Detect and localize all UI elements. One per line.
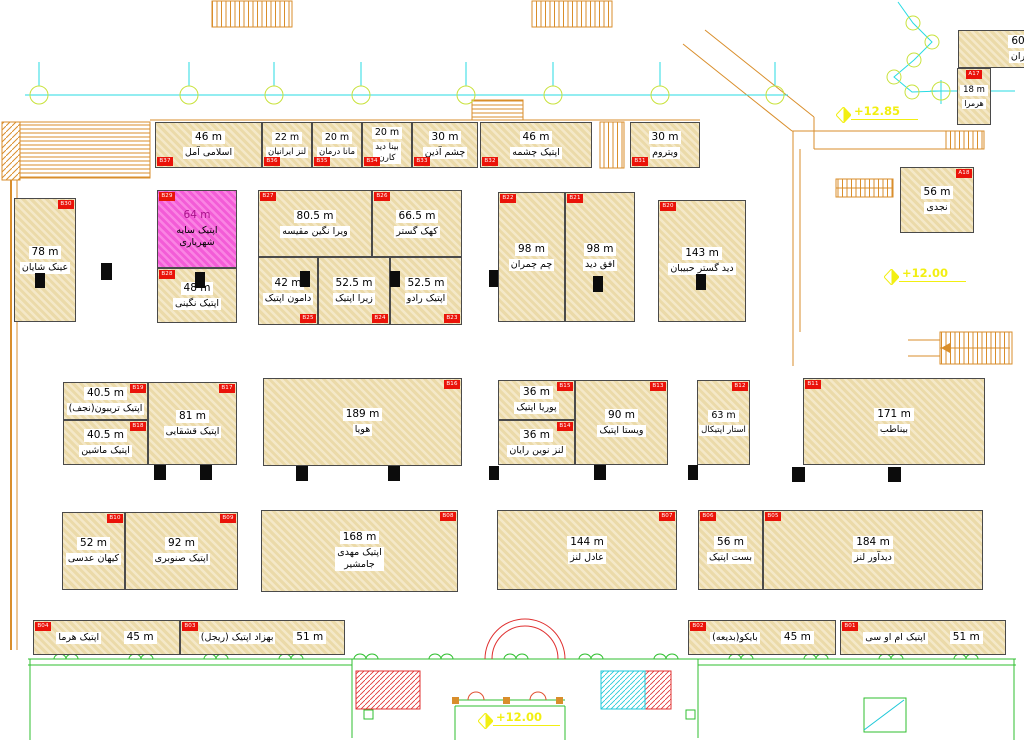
unit-tag: B04 <box>35 622 51 631</box>
unit-tag: B17 <box>219 384 235 393</box>
unit-B32[interactable]: B3246 mاپتیک چشمه <box>480 122 592 168</box>
unit-A17[interactable]: A1718 mهرمرا <box>957 68 991 125</box>
unit-name-label: اپتیک مهدی جامشیر <box>335 547 383 571</box>
unit-labels: 56 mبست اپتیک <box>699 511 762 589</box>
unit-name-label: کیهان عدسی <box>66 553 121 565</box>
door-marker <box>296 466 308 481</box>
unit-labels: 81 mاپتیک قشقایی <box>149 383 236 464</box>
unit-B21[interactable]: B2198 mافق دید <box>565 192 635 322</box>
unit-B27[interactable]: B2780.5 mویرا نگین مقیسه <box>258 190 372 257</box>
unit-corner[interactable]: 60ران <box>958 30 1024 68</box>
door-marker <box>35 273 45 288</box>
door-marker <box>195 272 205 288</box>
unit-name-label: چم چمران <box>509 259 554 271</box>
door-marker <box>489 466 499 480</box>
unit-name-label: هرمرا <box>962 99 986 109</box>
unit-tag: B34 <box>364 157 380 166</box>
unit-labels: 64 mاپتیک سایه شهریاری <box>158 191 236 267</box>
unit-tag: B35 <box>314 157 330 166</box>
unit-tag: B08 <box>440 512 456 521</box>
unit-area-label: 81 m <box>176 410 209 423</box>
unit-tag: B32 <box>482 157 498 166</box>
unit-name-label: زیرا اپتیک <box>333 293 375 305</box>
unit-B23[interactable]: B2352.5 mاپتیک رادو <box>390 257 462 325</box>
unit-tag: B28 <box>159 270 175 279</box>
door-marker <box>792 467 805 482</box>
elevation-marker: +12.00 <box>884 266 966 285</box>
unit-area-label: 52.5 m <box>333 277 376 290</box>
unit-area-label: 18 m <box>960 85 988 96</box>
elevation-label: +12.00 <box>493 710 560 726</box>
unit-labels: 63 mاستار اپتیکال <box>698 381 749 464</box>
unit-tag: B11 <box>805 380 821 389</box>
unit-tag: B14 <box>557 422 573 431</box>
unit-labels: 52 mکیهان عدسی <box>63 513 124 589</box>
unit-area-label: 144 m <box>567 536 607 549</box>
door-marker <box>390 271 400 287</box>
unit-B20[interactable]: B20143 mدید گستر حبیبان <box>658 200 746 322</box>
level-symbol-icon <box>478 713 493 729</box>
unit-area-label: 168 m <box>340 531 380 544</box>
unit-tag: A17 <box>966 70 982 79</box>
unit-tag: B09 <box>220 514 236 523</box>
unit-area-label: 20 m <box>322 132 352 144</box>
room-diagonal <box>864 700 904 730</box>
unit-tag: A18 <box>956 169 972 178</box>
unit-tag: B07 <box>659 512 675 521</box>
floor-plan: B3746 mاسلامی آملB3622 mلنز ایرانیانB352… <box>0 0 1024 740</box>
unit-tag: B02 <box>690 622 706 631</box>
unit-labels: 98 mچم چمران <box>499 193 564 321</box>
unit-B33[interactable]: B3330 mچشم آذین <box>412 122 478 168</box>
unit-B12[interactable]: B1263 mاستار اپتیکال <box>697 380 750 465</box>
unit-name-label: دیدآور لنز <box>852 552 894 564</box>
unit-area-label: 36 m <box>520 429 553 442</box>
unit-tag: B05 <box>765 512 781 521</box>
unit-name-label: ران <box>1009 51 1024 63</box>
unit-area-label: 171 m <box>874 408 914 421</box>
unit-tag: B13 <box>650 382 666 391</box>
unit-B22[interactable]: B2298 mچم چمران <box>498 192 565 322</box>
unit-labels: 184 mدیدآور لنز <box>764 511 982 589</box>
unit-tag: B37 <box>157 157 173 166</box>
unit-A18[interactable]: A1856 mنجدی <box>900 167 974 233</box>
unit-labels: بهزاد اپتیک (ریجل)51 m <box>181 621 344 654</box>
unit-tag: B22 <box>500 194 516 203</box>
unit-B02[interactable]: B02بایکو(بدیعه)45 m <box>688 620 836 655</box>
unit-tag: B25 <box>300 314 316 323</box>
column-grid-lines <box>25 2 1015 104</box>
elevation-label: +12.00 <box>899 266 966 282</box>
unit-B08[interactable]: B08168 mاپتیک مهدی جامشیر <box>261 510 458 592</box>
unit-B05[interactable]: B05184 mدیدآور لنز <box>763 510 983 590</box>
unit-area-label: 46 m <box>520 131 553 144</box>
unit-name-label: اپتیک صنوبری <box>153 553 211 565</box>
unit-tag: B15 <box>557 382 573 391</box>
door-marker <box>593 276 603 292</box>
unit-tag: B03 <box>182 622 198 631</box>
door-marker <box>154 465 166 480</box>
unit-B10[interactable]: B1052 mکیهان عدسی <box>62 512 125 590</box>
unit-name-label: بهزاد اپتیک (ریجل) <box>199 632 276 644</box>
elevation-marker: +12.00 <box>478 710 560 729</box>
unit-tag: B23 <box>444 314 460 323</box>
unit-name-label: هویا <box>353 424 372 436</box>
unit-labels: اپتیک هرما45 m <box>34 621 179 654</box>
unit-B19[interactable]: B1940.5 mاپتیک تریبون(نجف) <box>63 382 148 420</box>
unit-area-label: 66.5 m <box>396 210 439 223</box>
unit-area-label: 30 m <box>429 131 462 144</box>
unit-B34[interactable]: B3420 mبینا دید کارن <box>362 122 412 168</box>
unit-labels: اپتیک ام او سی51 m <box>841 621 1005 654</box>
unit-name-label: ویستا اپتیک <box>597 425 645 437</box>
unit-B37[interactable]: B3746 mاسلامی آمل <box>155 122 262 168</box>
unit-name-label: عادل لنز <box>568 552 606 564</box>
unit-B07[interactable]: B07144 mعادل لنز <box>497 510 677 590</box>
unit-area-label: 46 m <box>192 131 225 144</box>
unit-labels: 60ران <box>959 31 1024 67</box>
unit-area-label: 56 m <box>921 186 954 199</box>
unit-B04[interactable]: B04اپتیک هرما45 m <box>33 620 180 655</box>
unit-name-label: بایکو(بدیعه) <box>710 632 760 644</box>
unit-labels: 144 mعادل لنز <box>498 511 676 589</box>
unit-name-label: پوریا اپتیک <box>514 402 558 414</box>
unit-tag: B06 <box>700 512 716 521</box>
unit-B16[interactable]: B16189 mهویا <box>263 378 462 466</box>
unit-area-label: 80.5 m <box>294 210 337 223</box>
unit-labels: 143 mدید گستر حبیبان <box>659 201 745 321</box>
unit-tag: B36 <box>264 157 280 166</box>
unit-area-label: 56 m <box>714 536 747 549</box>
unit-tag: B29 <box>159 192 175 201</box>
unit-area-label: 45 m <box>781 631 814 644</box>
door-marker <box>489 270 498 287</box>
unit-labels: 168 mاپتیک مهدی جامشیر <box>262 511 457 591</box>
unit-name-label: دامون اپتیک <box>263 293 313 305</box>
unit-name-label: بست اپتیک <box>707 552 754 564</box>
unit-area-label: 98 m <box>515 243 548 256</box>
unit-name-label: اپتیک تریبون(نجف) <box>67 403 145 415</box>
unit-tag: B21 <box>567 194 583 203</box>
unit-name-label: لنز نوین رایان <box>507 445 565 457</box>
unit-tag: B12 <box>732 382 748 391</box>
unit-tag: B19 <box>130 384 146 393</box>
unit-B31[interactable]: B3130 mویتروم <box>630 122 700 168</box>
door-marker <box>101 263 112 280</box>
door-marker <box>388 466 400 481</box>
unit-name-label: اپتیک سایه شهریاری <box>158 225 236 249</box>
unit-name-label: استار اپتیکال <box>699 425 748 436</box>
unit-B36[interactable]: B3622 mلنز ایرانیان <box>262 122 312 168</box>
unit-B29[interactable]: B2964 mاپتیک سایه شهریاری <box>157 190 237 268</box>
unit-name-label: اسلامی آمل <box>183 147 234 159</box>
door-marker <box>888 467 901 482</box>
unit-area-label: 63 m <box>708 410 738 422</box>
unit-tag: B16 <box>444 380 460 389</box>
unit-name-label: اپتیک نگینی <box>173 298 221 310</box>
unit-B18[interactable]: B1840.5 mاپتیک ماشین <box>63 420 148 465</box>
elevator-shaft <box>601 671 645 709</box>
unit-B14[interactable]: B1436 mلنز نوین رایان <box>498 420 575 465</box>
unit-area-label: 189 m <box>343 408 383 421</box>
unit-B01[interactable]: B01اپتیک ام او سی51 m <box>840 620 1006 655</box>
unit-area-label: 51 m <box>293 631 326 644</box>
unit-area-label: 78 m <box>29 246 62 259</box>
unit-name-label: اپتیک ماشین <box>79 445 132 457</box>
unit-area-label: 36 m <box>520 386 553 399</box>
unit-tag: B20 <box>660 202 676 211</box>
unit-B35[interactable]: B3520 mمانا درمان <box>312 122 362 168</box>
unit-tag: B10 <box>107 514 123 523</box>
unit-B30[interactable]: B3078 mعینک شایان <box>14 198 76 322</box>
unit-tag: B30 <box>58 200 74 209</box>
unit-area-label: 52.5 m <box>405 277 448 290</box>
unit-labels: 98 mافق دید <box>566 193 634 321</box>
unit-labels: 78 mعینک شایان <box>15 199 75 321</box>
unit-name-label: اپتیک چشمه <box>510 147 561 159</box>
unit-tag: B31 <box>632 157 648 166</box>
unit-labels: 92 mاپتیک صنوبری <box>126 513 237 589</box>
unit-tag: B33 <box>414 157 430 166</box>
unit-B17[interactable]: B1781 mاپتیک قشقایی <box>148 382 237 465</box>
unit-area-label: 45 m <box>124 631 157 644</box>
unit-name-label: بیناطب <box>878 424 910 436</box>
elevation-marker: +12.85 <box>836 104 918 123</box>
unit-tag: B27 <box>260 192 276 201</box>
unit-area-label: 20 m <box>372 127 402 139</box>
unit-area-label: 90 m <box>605 409 638 422</box>
unit-B24[interactable]: B2452.5 mزیرا اپتیک <box>318 257 390 325</box>
unit-area-label: 98 m <box>584 243 617 256</box>
unit-tag: B18 <box>130 422 146 431</box>
level-symbol-icon <box>836 107 851 123</box>
unit-name-label: اپتیک قشقایی <box>164 426 222 438</box>
unit-area-label: 52 m <box>77 537 110 550</box>
unit-area-label: 40.5 m <box>84 429 127 442</box>
door-marker <box>200 465 212 480</box>
unit-labels: 171 mبیناطب <box>804 379 984 464</box>
unit-area-label: 60 <box>1008 35 1024 48</box>
unit-labels: 189 mهویا <box>264 379 461 465</box>
unit-B13[interactable]: B1390 mویستا اپتیک <box>575 380 668 465</box>
unit-area-label: 92 m <box>165 537 198 550</box>
unit-tag: B26 <box>374 192 390 201</box>
unit-name-label: نجدی <box>924 202 949 214</box>
unit-area-label: 64 m <box>181 209 214 222</box>
unit-area-label: 143 m <box>682 247 722 260</box>
unit-name-label: اپتیک ام او سی <box>863 632 927 644</box>
unit-area-label: 40.5 m <box>84 387 127 400</box>
grid-bubbles <box>30 16 950 104</box>
unit-B03[interactable]: B03بهزاد اپتیک (ریجل)51 m <box>180 620 345 655</box>
unit-area-label: 184 m <box>853 536 893 549</box>
unit-B25[interactable]: B2542 mدامون اپتیک <box>258 257 318 325</box>
unit-name-label: ویتروم <box>650 147 680 159</box>
unit-area-label: 51 m <box>950 631 983 644</box>
unit-area-label: 22 m <box>272 132 302 144</box>
elevation-label: +12.85 <box>851 104 918 120</box>
unit-B09[interactable]: B0992 mاپتیک صنوبری <box>125 512 238 590</box>
door-marker <box>594 465 606 480</box>
unit-tag: B24 <box>372 314 388 323</box>
level-symbol-icon <box>884 269 899 285</box>
unit-B15[interactable]: B1536 mپوریا اپتیک <box>498 380 575 420</box>
unit-name-label: افق دید <box>583 259 617 271</box>
unit-labels: 90 mویستا اپتیک <box>576 381 667 464</box>
unit-B06[interactable]: B0656 mبست اپتیک <box>698 510 763 590</box>
unit-name-label: اپتیک هرما <box>56 632 101 644</box>
door-marker <box>688 465 698 480</box>
unit-area-label: 30 m <box>649 131 682 144</box>
door-marker <box>300 271 310 287</box>
door-marker <box>696 274 706 290</box>
unit-name-label: اپتیک رادو <box>405 293 448 305</box>
unit-labels: بایکو(بدیعه)45 m <box>689 621 835 654</box>
unit-name-label: ویرا نگین مقیسه <box>280 226 349 238</box>
unit-B11[interactable]: B11171 mبیناطب <box>803 378 985 465</box>
unit-B26[interactable]: B2666.5 mکهک گستر <box>372 190 462 257</box>
unit-tag: B01 <box>842 622 858 631</box>
unit-name-label: کهک گستر <box>394 226 440 238</box>
